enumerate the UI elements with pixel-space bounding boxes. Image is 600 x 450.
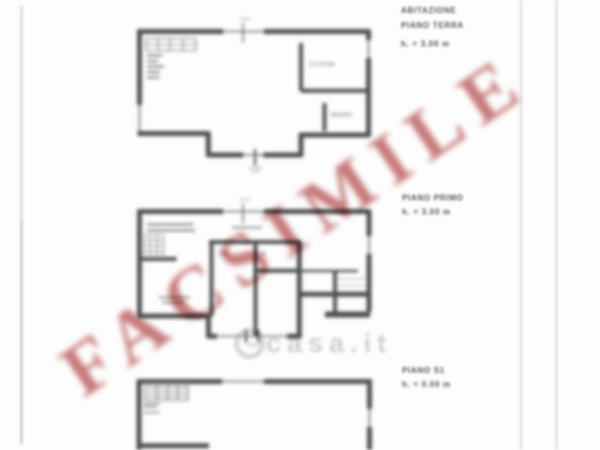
svg-text:BAGNO: BAGNO	[331, 113, 353, 119]
svg-text:PIANO TERRA: PIANO TERRA	[401, 21, 464, 30]
svg-text:casa.it: casa.it	[266, 328, 392, 358]
svg-text:ABITAZIONE: ABITAZIONE	[401, 6, 456, 15]
svg-text:h. = 3.00 m: h. = 3.00 m	[401, 40, 450, 49]
svg-text:h. = 3.00 m: h. = 3.00 m	[402, 208, 451, 217]
svg-text:PIANO S1: PIANO S1	[402, 366, 445, 375]
svg-text:CUCINA: CUCINA	[310, 62, 335, 68]
svg-text:h. = 0.00 m: h. = 0.00 m	[402, 380, 451, 389]
